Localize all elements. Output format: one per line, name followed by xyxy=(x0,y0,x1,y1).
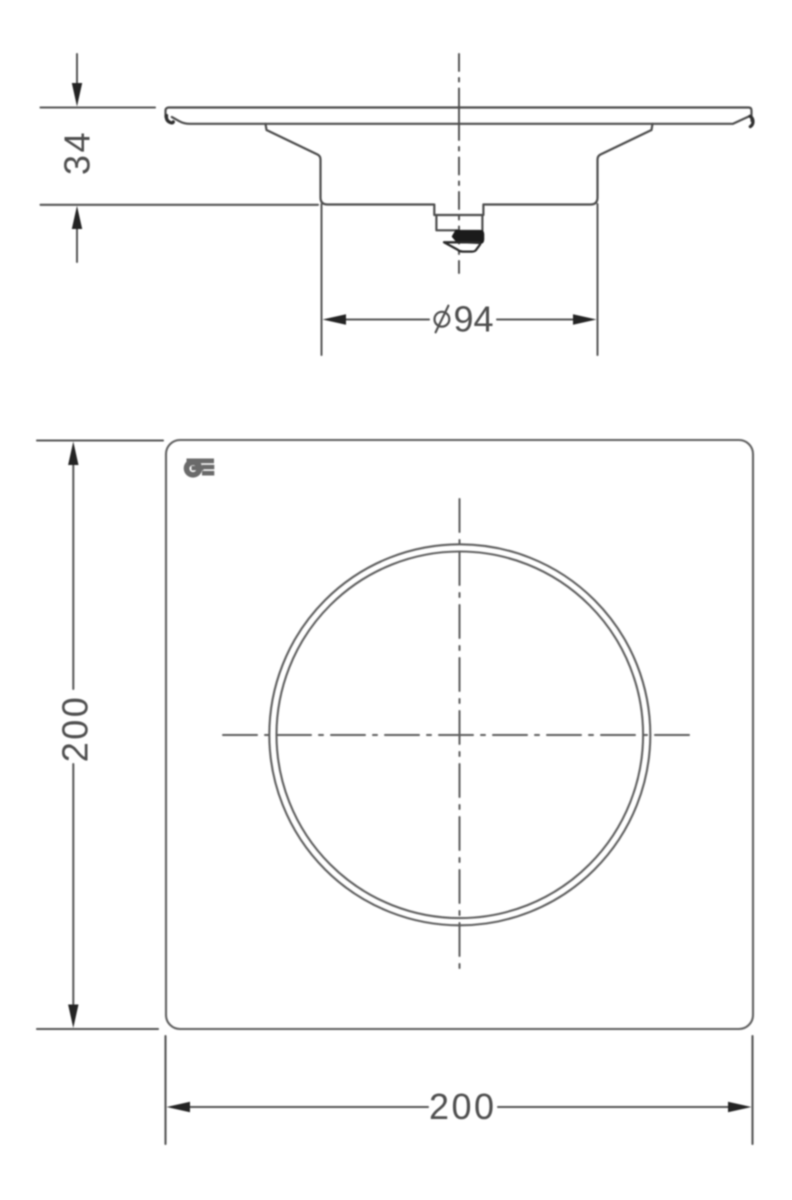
svg-text:200: 200 xyxy=(55,695,96,763)
svg-text:94: 94 xyxy=(454,299,494,340)
svg-text:34: 34 xyxy=(57,130,98,175)
svg-text:200: 200 xyxy=(429,1086,497,1127)
